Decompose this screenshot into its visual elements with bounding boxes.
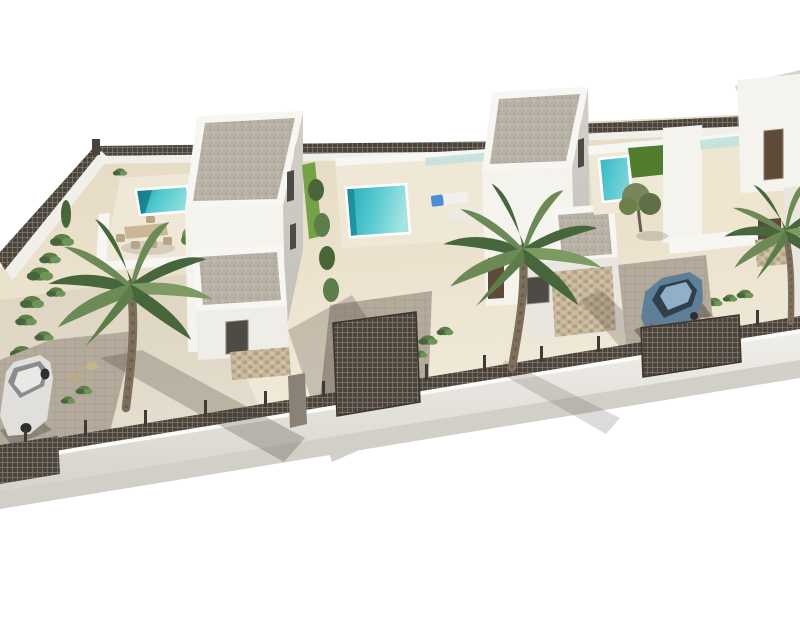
car-wheel <box>690 312 698 320</box>
villa3-tower <box>735 70 800 193</box>
cypress <box>61 200 71 228</box>
towel <box>431 194 444 206</box>
render-canvas <box>0 0 800 640</box>
villa3-upper-door <box>764 129 783 180</box>
villa2-gravel-roof <box>490 94 580 164</box>
villa1-stone-base <box>230 347 291 380</box>
architectural-render <box>0 0 800 640</box>
chair <box>116 234 125 242</box>
chair <box>146 216 155 223</box>
fence-corner-post <box>92 139 100 155</box>
villa1-window-slit <box>287 170 294 202</box>
villa2-window-slit <box>578 138 584 168</box>
villa3-lawn <box>628 145 668 178</box>
villa1-lower-gravel-roof <box>199 252 281 305</box>
chair <box>131 241 140 249</box>
gate-2 <box>333 312 420 416</box>
villa3-left-wall <box>663 125 702 243</box>
villa1-window-slit <box>290 223 296 250</box>
chair <box>163 237 172 245</box>
car-wheel <box>41 369 50 380</box>
gate-2-pillar <box>288 373 307 428</box>
villa1-window <box>226 320 248 354</box>
